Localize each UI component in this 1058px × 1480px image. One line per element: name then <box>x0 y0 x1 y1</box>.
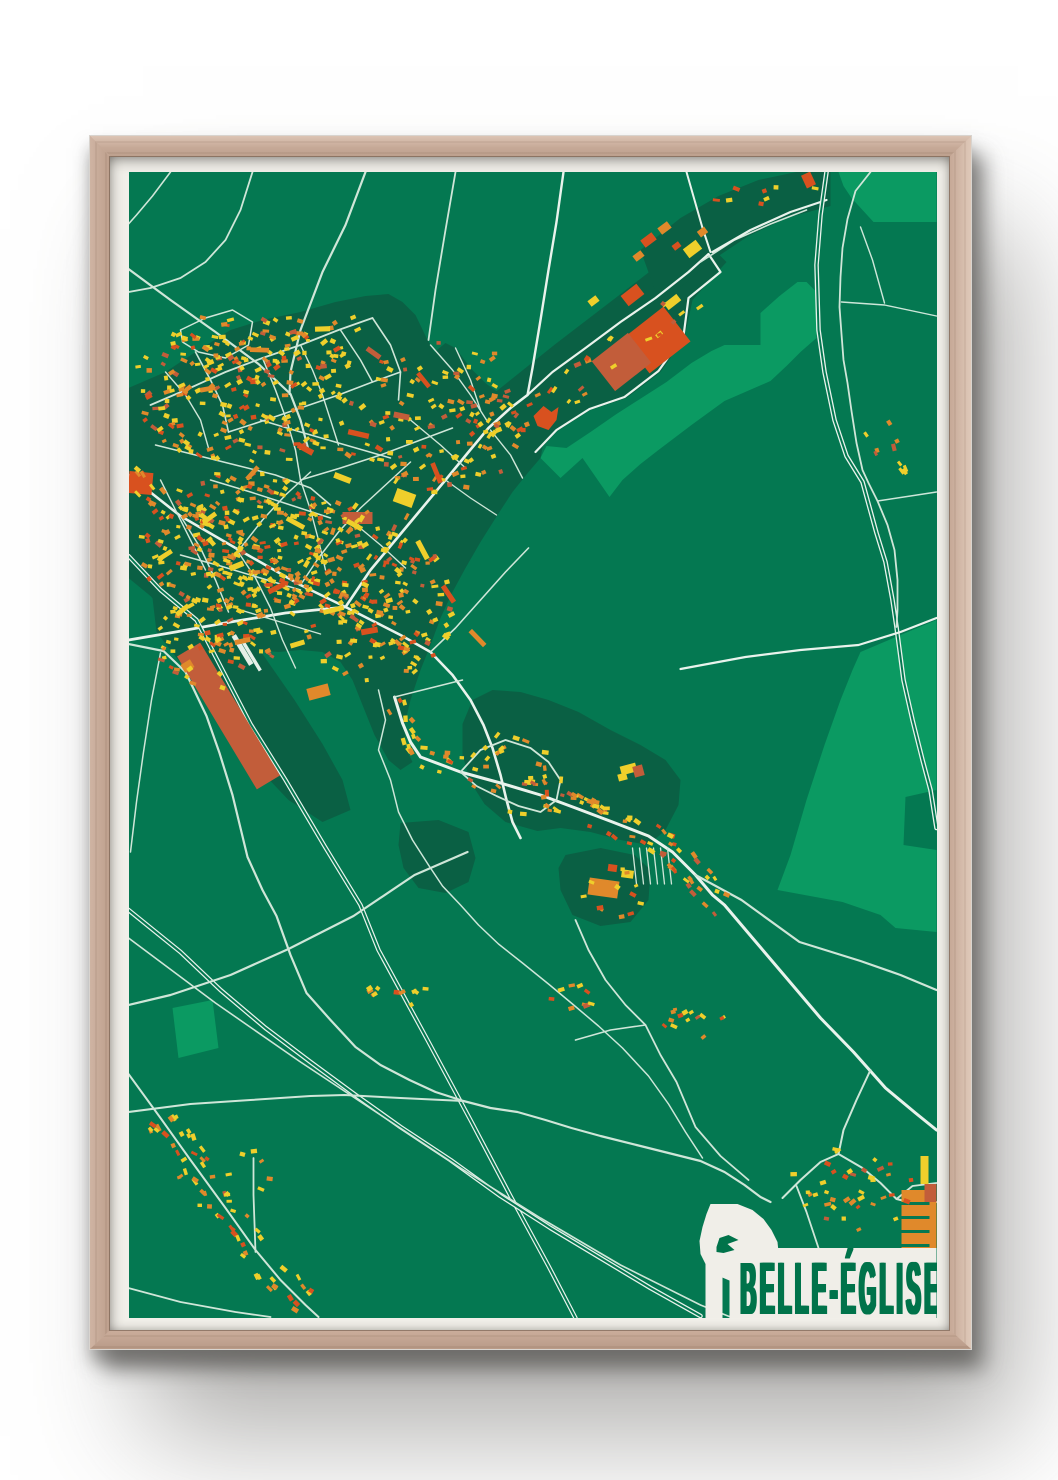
svg-text:BELLE-ÉGLISE: BELLE-ÉGLISE <box>741 1248 936 1318</box>
